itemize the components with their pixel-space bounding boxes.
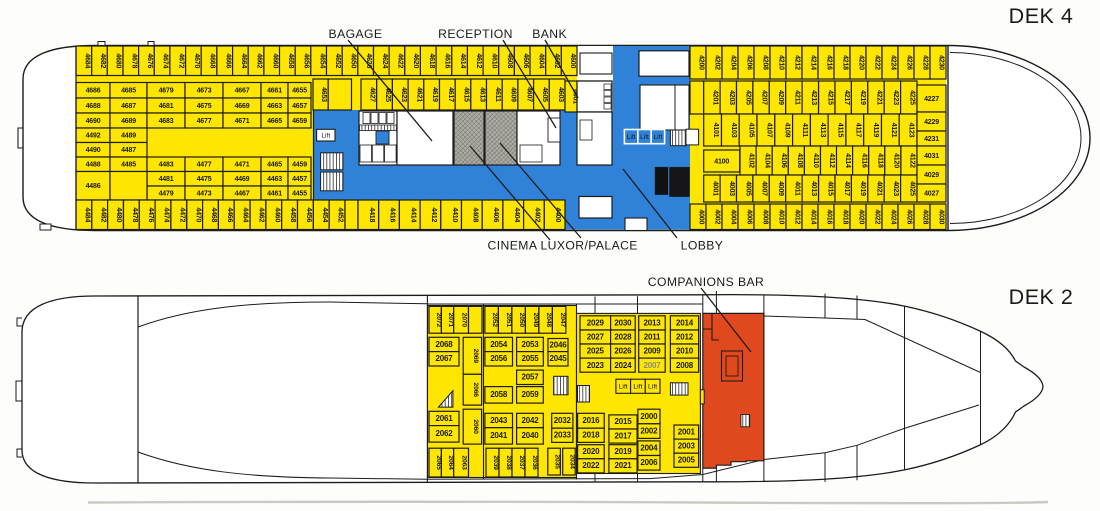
svg-text:4207: 4207: [761, 90, 768, 105]
svg-text:4223: 4223: [892, 90, 899, 105]
svg-text:4119: 4119: [872, 123, 879, 138]
svg-text:4471: 4471: [235, 162, 250, 169]
svg-text:2069: 2069: [472, 349, 479, 364]
svg-text:4460: 4460: [273, 207, 280, 222]
svg-text:2019: 2019: [615, 447, 633, 456]
svg-text:4681: 4681: [159, 103, 174, 110]
svg-text:4214: 4214: [810, 55, 817, 70]
svg-text:4224: 4224: [890, 55, 897, 70]
svg-text:2066: 2066: [472, 383, 479, 398]
svg-text:4469: 4469: [235, 176, 250, 183]
svg-text:4650: 4650: [350, 53, 357, 68]
svg-text:4483: 4483: [159, 162, 174, 169]
svg-text:4210: 4210: [778, 55, 785, 70]
svg-text:4003: 4003: [728, 181, 735, 196]
svg-text:2041: 2041: [490, 431, 508, 440]
svg-text:4680: 4680: [115, 53, 122, 68]
svg-text:2043: 2043: [490, 416, 508, 425]
svg-text:4689: 4689: [121, 118, 136, 125]
svg-text:2023: 2023: [587, 361, 605, 370]
svg-text:2025: 2025: [587, 347, 605, 356]
svg-text:4020: 4020: [858, 209, 865, 224]
svg-text:2024: 2024: [614, 361, 632, 370]
svg-text:4216: 4216: [826, 55, 833, 70]
svg-text:4008: 4008: [762, 209, 769, 224]
svg-text:2035: 2035: [554, 454, 561, 469]
svg-text:2053: 2053: [522, 340, 540, 349]
svg-text:2037: 2037: [518, 455, 525, 470]
svg-text:4662: 4662: [256, 53, 263, 68]
svg-text:4227: 4227: [924, 96, 939, 103]
svg-text:2068: 2068: [436, 340, 454, 349]
svg-text:4685: 4685: [121, 88, 136, 95]
svg-text:4468: 4468: [210, 207, 217, 222]
svg-text:4007: 4007: [761, 181, 768, 196]
svg-text:4208: 4208: [762, 55, 769, 70]
svg-text:4488: 4488: [86, 162, 101, 169]
svg-text:4456: 4456: [305, 207, 312, 222]
svg-text:2002: 2002: [640, 426, 658, 435]
svg-text:2071: 2071: [447, 313, 454, 328]
svg-text:4107: 4107: [766, 123, 773, 138]
svg-text:4670: 4670: [193, 53, 200, 68]
svg-text:4482: 4482: [99, 207, 106, 222]
svg-text:2030: 2030: [614, 319, 632, 328]
svg-text:4484: 4484: [84, 207, 91, 222]
svg-text:2033: 2033: [554, 431, 572, 440]
svg-text:Lift: Lift: [619, 384, 628, 391]
svg-text:4406: 4406: [492, 207, 499, 222]
svg-text:4600: 4600: [569, 53, 576, 68]
svg-text:4121: 4121: [890, 123, 897, 138]
svg-text:4620: 4620: [412, 53, 419, 68]
svg-text:4106: 4106: [780, 153, 787, 168]
svg-text:4462: 4462: [258, 207, 265, 222]
svg-text:2062: 2062: [436, 429, 454, 438]
svg-text:4677: 4677: [197, 118, 212, 125]
svg-text:4022: 4022: [874, 209, 881, 224]
svg-text:4120: 4120: [893, 153, 900, 168]
svg-text:4001: 4001: [712, 181, 719, 196]
svg-text:2048: 2048: [545, 313, 552, 328]
svg-text:4213: 4213: [810, 90, 817, 105]
svg-text:4474: 4474: [163, 207, 170, 222]
svg-text:2022: 2022: [582, 461, 600, 470]
svg-text:2036: 2036: [531, 455, 538, 470]
svg-text:4619: 4619: [431, 87, 438, 102]
svg-text:2011: 2011: [644, 333, 661, 342]
svg-text:4201: 4201: [712, 90, 719, 105]
svg-text:4455: 4455: [292, 190, 307, 197]
svg-text:4200: 4200: [698, 55, 705, 70]
svg-text:4654: 4654: [318, 53, 325, 68]
svg-text:4486: 4486: [86, 183, 101, 190]
svg-text:Lift: Lift: [321, 133, 330, 140]
svg-text:4623: 4623: [400, 87, 407, 102]
svg-text:2039: 2039: [492, 455, 499, 470]
svg-text:Lift: Lift: [627, 134, 636, 141]
svg-text:4489: 4489: [121, 133, 136, 140]
svg-text:2005: 2005: [678, 456, 696, 465]
svg-text:4485: 4485: [121, 162, 136, 169]
svg-text:2059: 2059: [522, 390, 540, 399]
svg-text:2027: 2027: [587, 333, 605, 342]
svg-text:DEK 4: DEK 4: [1009, 4, 1074, 28]
svg-text:4025: 4025: [908, 181, 915, 196]
svg-text:BAGAGE: BAGAGE: [329, 27, 383, 41]
svg-text:4655: 4655: [292, 88, 307, 95]
svg-text:4212: 4212: [794, 55, 801, 70]
svg-text:4028: 4028: [922, 209, 929, 224]
svg-text:4013: 4013: [810, 181, 817, 196]
svg-text:4204: 4204: [730, 55, 737, 70]
svg-text:2001: 2001: [678, 427, 696, 436]
svg-text:4659: 4659: [292, 118, 307, 125]
svg-text:2008: 2008: [676, 361, 694, 370]
svg-text:2052: 2052: [491, 313, 498, 328]
svg-text:4114: 4114: [844, 153, 851, 168]
svg-text:2003: 2003: [678, 442, 696, 451]
svg-text:2034: 2034: [569, 454, 576, 469]
svg-text:2014: 2014: [676, 319, 694, 328]
svg-text:4618: 4618: [428, 53, 435, 68]
svg-text:4118: 4118: [876, 153, 883, 168]
svg-text:4220: 4220: [858, 55, 865, 70]
svg-text:4108: 4108: [796, 153, 803, 168]
svg-text:2050: 2050: [518, 313, 525, 328]
svg-text:4104: 4104: [764, 153, 771, 168]
svg-text:4010: 4010: [778, 209, 785, 224]
svg-text:4226: 4226: [906, 55, 913, 70]
svg-text:4229: 4229: [924, 119, 939, 126]
svg-text:4122: 4122: [909, 153, 916, 168]
svg-text:4019: 4019: [859, 181, 866, 196]
svg-text:2032: 2032: [554, 416, 572, 425]
svg-text:4473: 4473: [197, 190, 212, 197]
svg-text:4665: 4665: [267, 118, 282, 125]
svg-text:4203: 4203: [728, 90, 735, 105]
svg-text:4684: 4684: [83, 53, 90, 68]
svg-text:DEK 2: DEK 2: [1009, 285, 1074, 309]
svg-text:2042: 2042: [522, 416, 540, 425]
svg-text:4656: 4656: [303, 53, 310, 68]
svg-text:4666: 4666: [224, 53, 231, 68]
svg-text:4111: 4111: [801, 123, 808, 137]
svg-text:4609: 4609: [510, 87, 517, 102]
svg-text:4231: 4231: [924, 136, 939, 143]
svg-text:4116: 4116: [860, 153, 867, 168]
svg-text:2040: 2040: [522, 431, 540, 440]
svg-text:Lift: Lift: [640, 134, 649, 141]
svg-text:4614: 4614: [459, 53, 466, 68]
svg-text:4467: 4467: [235, 190, 250, 197]
svg-text:4113: 4113: [819, 123, 826, 138]
svg-text:4218: 4218: [842, 55, 849, 70]
svg-text:4615: 4615: [463, 87, 470, 102]
svg-text:4100: 4100: [714, 158, 729, 165]
svg-text:4616: 4616: [444, 53, 451, 68]
svg-text:4661: 4661: [267, 88, 282, 95]
svg-text:2058: 2058: [490, 390, 508, 399]
svg-text:4676: 4676: [146, 53, 153, 68]
svg-text:2004: 2004: [640, 444, 658, 453]
svg-text:4112: 4112: [828, 153, 835, 168]
svg-text:4607: 4607: [525, 87, 532, 102]
svg-text:4228: 4228: [922, 55, 929, 70]
svg-text:4487: 4487: [121, 147, 136, 154]
svg-text:4123: 4123: [908, 123, 915, 138]
svg-text:4454: 4454: [321, 207, 328, 222]
svg-text:4672: 4672: [177, 53, 184, 68]
svg-text:2012: 2012: [676, 333, 694, 342]
svg-text:4221: 4221: [876, 90, 883, 105]
svg-text:4211: 4211: [794, 90, 801, 105]
svg-text:4452: 4452: [337, 207, 344, 222]
svg-text:4402: 4402: [534, 207, 541, 222]
svg-text:4611: 4611: [494, 87, 501, 102]
svg-text:RECEPTION: RECEPTION: [438, 27, 513, 41]
svg-text:2007: 2007: [644, 361, 662, 370]
svg-text:2055: 2055: [522, 354, 540, 363]
svg-text:4613: 4613: [478, 87, 485, 102]
svg-text:4688: 4688: [86, 103, 101, 110]
svg-text:4016: 4016: [826, 209, 833, 224]
svg-text:4465: 4465: [267, 162, 282, 169]
svg-text:4669: 4669: [235, 103, 250, 110]
svg-text:4018: 4018: [842, 209, 849, 224]
svg-text:4222: 4222: [874, 55, 881, 70]
svg-text:Lift: Lift: [633, 384, 642, 391]
svg-text:2028: 2028: [614, 333, 632, 342]
svg-text:2047: 2047: [559, 313, 566, 328]
svg-text:4464: 4464: [242, 207, 249, 222]
svg-text:4622: 4622: [397, 53, 404, 68]
svg-text:2061: 2061: [436, 414, 454, 423]
svg-text:4117: 4117: [854, 123, 861, 138]
svg-text:4478: 4478: [131, 207, 138, 222]
svg-text:4004: 4004: [730, 209, 737, 224]
svg-text:4005: 4005: [744, 181, 751, 196]
svg-text:4115: 4115: [837, 123, 844, 138]
svg-text:4617: 4617: [447, 87, 454, 102]
svg-text:4031: 4031: [924, 153, 939, 160]
svg-text:4030: 4030: [938, 209, 945, 224]
svg-text:2054: 2054: [490, 340, 508, 349]
svg-text:4225: 4225: [908, 90, 915, 105]
svg-text:4658: 4658: [287, 53, 294, 68]
svg-text:2021: 2021: [615, 461, 633, 470]
svg-text:2072: 2072: [435, 313, 442, 328]
svg-text:4102: 4102: [748, 153, 755, 168]
svg-text:4011: 4011: [794, 181, 801, 196]
svg-text:4667: 4667: [235, 88, 250, 95]
svg-text:2026: 2026: [614, 347, 632, 356]
svg-text:4110: 4110: [812, 153, 819, 168]
svg-text:4002: 4002: [714, 209, 721, 224]
svg-text:4480: 4480: [115, 207, 122, 222]
svg-text:4610: 4610: [491, 53, 498, 68]
svg-text:4412: 4412: [430, 207, 437, 222]
svg-text:2045: 2045: [550, 354, 568, 363]
svg-text:2067: 2067: [436, 354, 454, 363]
svg-text:4017: 4017: [843, 181, 850, 196]
svg-text:4625: 4625: [384, 87, 391, 102]
svg-text:4009: 4009: [777, 181, 784, 196]
svg-text:4606: 4606: [522, 53, 529, 68]
svg-text:4476: 4476: [147, 207, 154, 222]
svg-text:4673: 4673: [197, 88, 212, 95]
svg-text:BANK: BANK: [532, 27, 567, 41]
svg-text:2000: 2000: [640, 412, 658, 421]
svg-text:4653: 4653: [320, 87, 327, 102]
svg-text:2056: 2056: [490, 354, 508, 363]
svg-text:4026: 4026: [906, 209, 913, 224]
svg-text:4006: 4006: [746, 209, 753, 224]
svg-text:4202: 4202: [714, 55, 721, 70]
svg-text:Lift: Lift: [654, 134, 663, 141]
svg-text:4678: 4678: [130, 53, 137, 68]
svg-text:2057: 2057: [522, 373, 540, 382]
svg-text:4686: 4686: [86, 88, 101, 95]
svg-text:4230: 4230: [938, 55, 945, 70]
svg-text:4660: 4660: [271, 53, 278, 68]
svg-text:4215: 4215: [826, 90, 833, 105]
svg-text:4463: 4463: [267, 176, 282, 183]
svg-text:4668: 4668: [209, 53, 216, 68]
svg-text:4027: 4027: [924, 190, 939, 197]
svg-text:4461: 4461: [267, 190, 282, 197]
svg-text:4029: 4029: [924, 172, 939, 179]
svg-text:CINEMA LUXOR/PALACE: CINEMA LUXOR/PALACE: [488, 238, 638, 252]
svg-text:4679: 4679: [159, 88, 174, 95]
svg-text:4675: 4675: [197, 103, 212, 110]
svg-text:2029: 2029: [587, 319, 605, 328]
svg-text:4624: 4624: [381, 53, 388, 68]
svg-text:2070: 2070: [461, 313, 468, 328]
svg-text:Lift: Lift: [648, 384, 657, 391]
svg-text:4671: 4671: [235, 118, 250, 125]
svg-text:4205: 4205: [744, 90, 751, 105]
svg-text:4024: 4024: [890, 209, 897, 224]
svg-text:4219: 4219: [859, 90, 866, 105]
svg-text:4457: 4457: [292, 176, 307, 183]
svg-text:2038: 2038: [505, 455, 512, 470]
svg-text:4477: 4477: [197, 162, 212, 169]
svg-text:2064: 2064: [447, 455, 454, 470]
svg-text:COMPANIONS BAR: COMPANIONS BAR: [648, 275, 764, 289]
svg-text:2060: 2060: [472, 419, 479, 434]
svg-text:4209: 4209: [777, 90, 784, 105]
svg-text:4663: 4663: [267, 103, 282, 110]
svg-text:4109: 4109: [783, 123, 790, 138]
svg-text:2016: 2016: [582, 416, 600, 425]
svg-text:4690: 4690: [86, 118, 101, 125]
svg-text:4408: 4408: [472, 207, 479, 222]
svg-text:2015: 2015: [615, 417, 633, 426]
svg-text:2051: 2051: [505, 313, 512, 328]
svg-text:4479: 4479: [159, 190, 174, 197]
svg-text:4101: 4101: [712, 123, 719, 138]
svg-text:4012: 4012: [794, 209, 801, 224]
svg-text:4103: 4103: [730, 123, 737, 138]
svg-text:4021: 4021: [876, 181, 883, 196]
svg-text:4458: 4458: [289, 207, 296, 222]
svg-text:4023: 4023: [892, 181, 899, 196]
svg-text:2017: 2017: [615, 431, 633, 440]
svg-text:4105: 4105: [748, 123, 755, 138]
svg-text:4206: 4206: [746, 55, 753, 70]
svg-text:4664: 4664: [240, 53, 247, 68]
svg-text:4015: 4015: [826, 181, 833, 196]
svg-text:4683: 4683: [159, 118, 174, 125]
svg-text:4605: 4605: [541, 87, 548, 102]
svg-text:LOBBY: LOBBY: [681, 238, 724, 252]
svg-text:2065: 2065: [435, 455, 442, 470]
svg-text:4604: 4604: [538, 53, 545, 68]
svg-text:4682: 4682: [99, 53, 106, 68]
svg-text:2018: 2018: [582, 431, 600, 440]
svg-text:4466: 4466: [226, 207, 233, 222]
svg-text:4404: 4404: [513, 207, 520, 222]
svg-text:4481: 4481: [159, 176, 174, 183]
svg-text:2046: 2046: [550, 340, 568, 349]
svg-text:4414: 4414: [409, 207, 416, 222]
svg-text:4492: 4492: [86, 133, 101, 140]
svg-text:4603: 4603: [557, 87, 564, 102]
svg-text:4000: 4000: [698, 209, 705, 224]
svg-text:2049: 2049: [532, 313, 539, 328]
svg-text:2010: 2010: [676, 347, 694, 356]
svg-text:2013: 2013: [644, 319, 662, 328]
svg-text:4475: 4475: [197, 176, 212, 183]
svg-text:4014: 4014: [810, 209, 817, 224]
svg-text:4470: 4470: [194, 207, 201, 222]
svg-text:4472: 4472: [179, 207, 186, 222]
svg-text:4674: 4674: [162, 53, 169, 68]
svg-text:4416: 4416: [389, 207, 396, 222]
svg-text:4418: 4418: [368, 207, 375, 222]
svg-text:2006: 2006: [640, 458, 658, 467]
svg-text:4217: 4217: [843, 90, 850, 105]
svg-text:2063: 2063: [461, 455, 468, 470]
svg-text:4621: 4621: [416, 87, 423, 102]
svg-text:4490: 4490: [86, 147, 101, 154]
svg-text:2020: 2020: [582, 447, 600, 456]
svg-text:4687: 4687: [121, 103, 136, 110]
svg-text:4410: 4410: [451, 207, 458, 222]
svg-text:4652: 4652: [334, 53, 341, 68]
svg-text:4657: 4657: [292, 103, 307, 110]
svg-text:4612: 4612: [475, 53, 482, 68]
svg-text:4459: 4459: [292, 162, 307, 169]
svg-text:2009: 2009: [644, 347, 662, 356]
svg-text:4627: 4627: [368, 87, 375, 102]
